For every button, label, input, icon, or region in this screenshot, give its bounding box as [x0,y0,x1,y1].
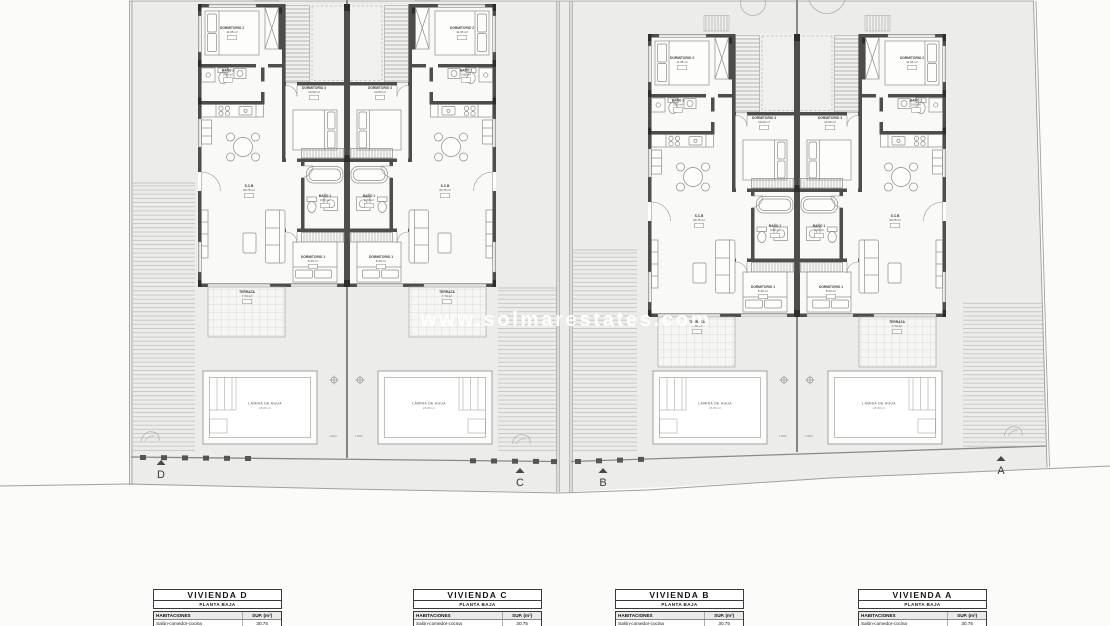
svg-text:L.REC: L.REC [805,434,813,438]
room-label-salon: S.C.B30.75 m² [693,214,705,228]
svg-text:30.75 m²: 30.75 m² [243,188,255,192]
svg-text:8.30 m²: 8.30 m² [376,259,386,263]
svg-text:8.30 m²: 8.30 m² [758,289,768,293]
driveway-vivienda-a [963,300,1046,448]
svg-text:L.REC: L.REC [329,434,337,438]
spec-table-vivienda-d: VIVIENDA D PLANTA BAJA HABITACIONESSUP. … [153,589,282,626]
spec-table-vivienda-c: VIVIENDA C PLANTA BAJA HABITACIONESSUP. … [413,589,542,626]
svg-text:11.65 m²: 11.65 m² [676,60,688,64]
svg-text:3.05 m²: 3.05 m² [673,103,683,107]
col-header-habitaciones: HABITACIONES [154,612,242,619]
spec-table-vivienda-b: VIVIENDA B PLANTA BAJA HABITACIONESSUP. … [615,589,744,626]
svg-text:A: A [997,465,1005,477]
svg-text:11.65 m²: 11.65 m² [906,60,918,64]
svg-text:B: B [599,477,606,489]
svg-text:LÁMINA DE AGUA: LÁMINA DE AGUA [248,401,282,406]
site-plan-sheet: DORMITORIO 211.65 m² BAÑO 23.05 m² DORMI… [0,0,1110,626]
svg-text:L.REC: L.REC [779,434,787,438]
svg-text:3.60 m²: 3.60 m² [320,198,330,202]
svg-text:3.60 m²: 3.60 m² [814,228,824,232]
svg-text:11.65 m²: 11.65 m² [456,30,468,34]
room-label-bano-1: BAÑO 13.60 m² [769,223,782,238]
svg-text:L.REC: L.REC [355,434,363,438]
svg-text:3.60 m²: 3.60 m² [770,228,780,232]
table-subtitle: PLANTA BAJA [858,601,987,609]
table-row: Salón-comedor-cocina30.75 [859,620,986,626]
col-header-habitaciones: HABITACIONES [859,612,947,619]
table-subtitle: PLANTA BAJA [615,601,744,609]
vivienda-d-unit [198,0,347,337]
svg-text:10.00 m²: 10.00 m² [758,120,770,124]
svg-text:8.30 m²: 8.30 m² [826,289,836,293]
svg-text:10.00 m²: 10.00 m² [374,90,386,94]
svg-text:23.80 m²: 23.80 m² [873,406,885,410]
driveway-vivienda-d [133,183,195,451]
svg-text:3.60 m²: 3.60 m² [364,198,374,202]
svg-text:7.70 m²: 7.70 m² [892,324,902,328]
room-label-bano-2: BAÑO 23.05 m² [910,98,923,113]
svg-text:30.75 m²: 30.75 m² [889,218,901,222]
svg-text:3.05 m²: 3.05 m² [461,73,471,77]
room-label-bano-2: BAÑO 23.05 m² [222,68,235,83]
svg-text:23.80 m²: 23.80 m² [709,406,721,410]
table-subtitle: PLANTA BAJA [413,601,542,609]
svg-text:23.80 m²: 23.80 m² [423,406,435,410]
room-label-salon: S.C.B30.75 m² [439,184,451,198]
col-header-sup: SUP. (m²) [947,612,986,619]
svg-text:LÁMINA DE AGUA: LÁMINA DE AGUA [412,401,446,406]
svg-text:7.70 m²: 7.70 m² [242,294,252,298]
room-label-bano-2: BAÑO 23.05 m² [460,68,473,83]
svg-text:3.05 m²: 3.05 m² [911,103,921,107]
table-title: VIVIENDA D [153,589,282,601]
svg-text:30.75 m²: 30.75 m² [439,188,451,192]
room-label-bano-2: BAÑO 23.05 m² [672,98,685,113]
table-row: Salón-comedor-cocina30.75 [414,620,541,626]
spec-table-vivienda-a: VIVIENDA A PLANTA BAJA HABITACIONESSUP. … [858,589,987,626]
col-header-sup: SUP. (m²) [502,612,541,619]
col-header-sup: SUP. (m²) [704,612,743,619]
svg-text:23.80 m²: 23.80 m² [259,406,271,410]
svg-text:LÁMINA DE AGUA: LÁMINA DE AGUA [862,401,896,406]
col-header-sup: SUP. (m²) [242,612,281,619]
col-header-habitaciones: HABITACIONES [616,612,704,619]
svg-text:30.75 m²: 30.75 m² [693,218,705,222]
watermark: www.solmarestates.com [419,308,711,331]
svg-text:7.70 m²: 7.70 m² [442,294,452,298]
room-label-bano-1: BAÑO 13.60 m² [363,193,376,208]
table-row: Salón-comedor-cocina30.75 [154,620,281,626]
table-row: Salón-comedor-cocina30.75 [616,620,743,626]
table-title: VIVIENDA B [615,589,744,601]
svg-text:8.30 m²: 8.30 m² [308,259,318,263]
col-header-habitaciones: HABITACIONES [414,612,502,619]
svg-text:11.65 m²: 11.65 m² [226,30,238,34]
table-title: VIVIENDA C [413,589,542,601]
vivienda-a-unit [797,16,946,368]
table-subtitle: PLANTA BAJA [153,601,282,609]
svg-text:10.00 m²: 10.00 m² [824,120,836,124]
room-label-bano-1: BAÑO 13.60 m² [319,193,332,208]
vivienda-c-unit [347,0,496,337]
driveway-vivienda-b [573,250,637,452]
table-title: VIVIENDA A [858,589,987,601]
svg-text:10.00 m²: 10.00 m² [308,90,320,94]
svg-text:D: D [157,469,165,481]
room-label-salon: S.C.B30.75 m² [243,184,255,198]
svg-text:3.05 m²: 3.05 m² [223,73,233,77]
svg-text:C: C [516,477,524,489]
floor-plan-drawing: DORMITORIO 211.65 m² BAÑO 23.05 m² DORMI… [0,0,1110,626]
svg-text:LÁMINA DE AGUA: LÁMINA DE AGUA [698,401,732,406]
room-label-bano-1: BAÑO 13.60 m² [813,223,826,238]
room-label-salon: S.C.B30.75 m² [889,214,901,228]
